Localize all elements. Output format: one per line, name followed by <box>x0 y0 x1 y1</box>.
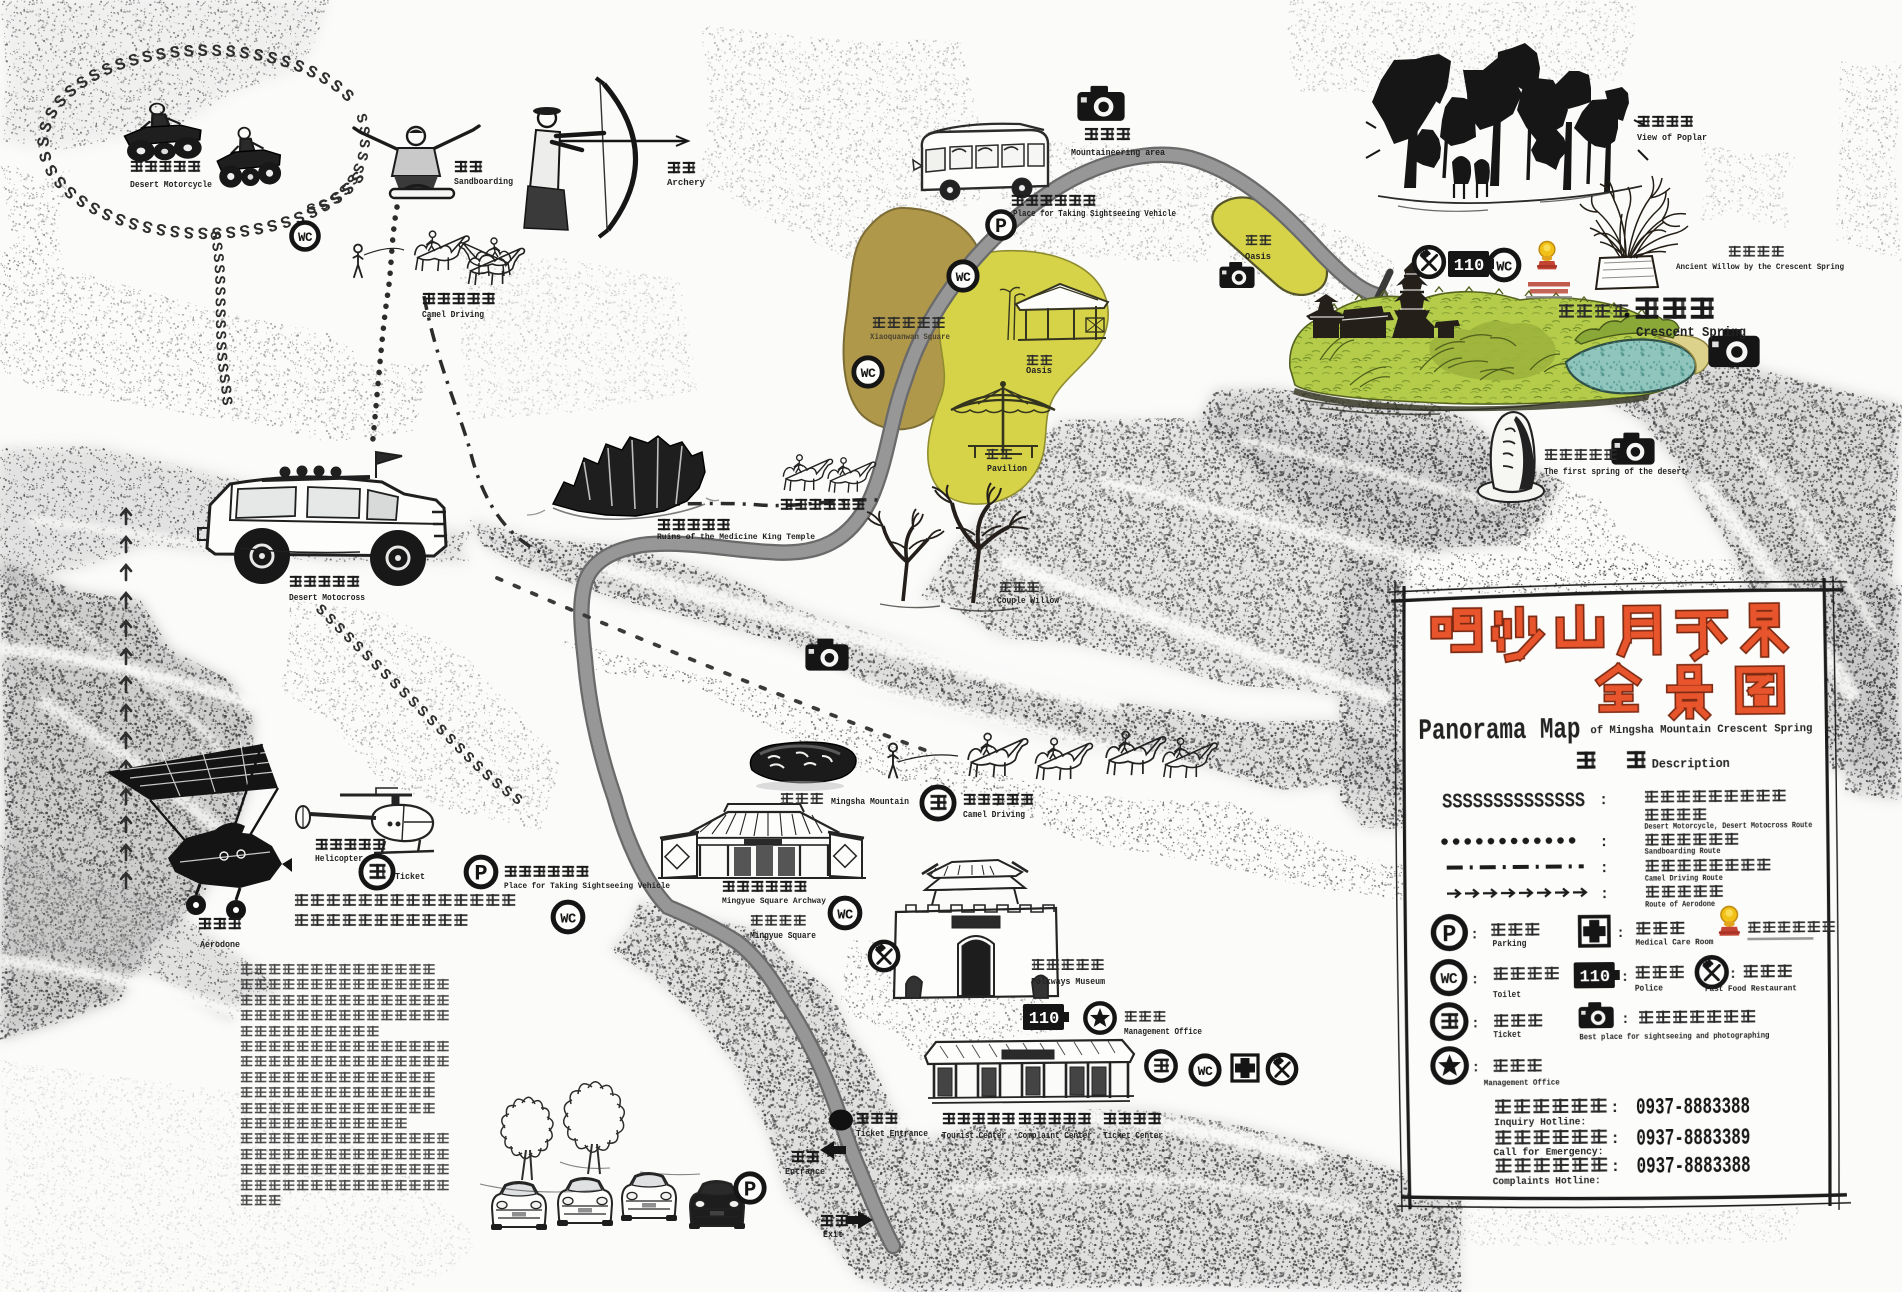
svg-text:Route of Aerodone: Route of Aerodone <box>1645 900 1715 910</box>
svg-text:Ticket Entrance: Ticket Entrance <box>856 1129 928 1139</box>
svg-text::: : <box>1611 1158 1621 1176</box>
svg-text:0937-8883388: 0937-8883388 <box>1636 1094 1750 1121</box>
svg-text:Desert Motocross: Desert Motocross <box>289 592 365 603</box>
svg-text:Description: Description <box>1652 757 1730 772</box>
svg-text:Place for Taking Sightseeing V: Place for Taking Sightseeing Vehicle <box>504 881 670 891</box>
svg-text:0937-8883389: 0937-8883389 <box>1636 1125 1750 1152</box>
svg-text:Archery: Archery <box>667 177 705 188</box>
svg-text:Fast Food Restaurant: Fast Food Restaurant <box>1705 983 1797 994</box>
svg-text::: : <box>1470 927 1479 943</box>
svg-text:Management Office: Management Office <box>1124 1027 1202 1037</box>
svg-text:Camel Driving Route: Camel Driving Route <box>1645 874 1723 884</box>
svg-text:Xiaoquanwan Square: Xiaoquanwan Square <box>870 332 950 342</box>
svg-text:Oasis: Oasis <box>1026 366 1052 376</box>
svg-text:Crescent Spring: Crescent Spring <box>1636 325 1746 341</box>
svg-text:SSSSSSSSSSSSSS: SSSSSSSSSSSSSS <box>1442 790 1585 814</box>
svg-text:Mingsha Mountain: Mingsha Mountain <box>831 796 909 807</box>
svg-text::: : <box>1599 834 1608 851</box>
svg-text:Mingyue Square: Mingyue Square <box>750 931 816 941</box>
svg-text:0937-8883388: 0937-8883388 <box>1636 1153 1750 1180</box>
svg-text:Complaint Center: Complaint Center <box>1018 1131 1092 1141</box>
svg-text:Inquiry Hotline:: Inquiry Hotline: <box>1494 1116 1586 1129</box>
svg-text:Desert Motorcycle, Desert Moto: Desert Motorcycle, Desert Motocross Rout… <box>1644 821 1812 832</box>
svg-text:Place for Taking Sightseeing V: Place for Taking Sightseeing Vehicle <box>1013 209 1176 219</box>
svg-text:Ticket Center: Ticket Center <box>1103 1131 1163 1141</box>
svg-text:Camel Driving: Camel Driving <box>963 809 1025 820</box>
svg-text:Exit: Exit <box>823 1230 843 1240</box>
svg-text::: : <box>1610 1130 1620 1148</box>
svg-text:Medical Care Room: Medical Care Room <box>1635 937 1713 948</box>
svg-text:Ticket: Ticket <box>395 871 425 882</box>
svg-text::: : <box>1621 970 1630 986</box>
svg-text:Ticket: Ticket <box>1493 1030 1521 1040</box>
svg-text:Sandboarding: Sandboarding <box>454 176 513 187</box>
svg-text:Parking: Parking <box>1492 939 1526 949</box>
svg-text:Sandboarding Route: Sandboarding Route <box>1645 847 1721 857</box>
svg-text:Mountaineering area: Mountaineering area <box>1071 147 1165 158</box>
svg-text::: : <box>1600 886 1609 903</box>
svg-text::: : <box>1471 972 1480 988</box>
svg-text:Mingyue Square Archway: Mingyue Square Archway <box>722 896 826 906</box>
svg-text:Best place for sightseeing and: Best place for sightseeing and photograp… <box>1579 1032 1769 1043</box>
svg-text:Police: Police <box>1635 984 1663 994</box>
svg-text:Aerodone: Aerodone <box>200 939 240 950</box>
svg-text:The first spring of the desert: The first spring of the desert <box>1544 467 1686 477</box>
svg-text:View of Poplar: View of Poplar <box>1637 132 1707 143</box>
svg-text:Panorama Map: Panorama Map <box>1418 713 1580 749</box>
svg-text:Folkways Museum: Folkways Museum <box>1031 977 1106 987</box>
svg-text:Management Office: Management Office <box>1484 1078 1560 1089</box>
svg-text:Ancient Willow by the Crescent: Ancient Willow by the Crescent Spring <box>1676 262 1844 272</box>
svg-text::: : <box>1599 792 1608 809</box>
svg-text:Oasis: Oasis <box>1245 252 1271 262</box>
svg-text:Pavilion: Pavilion <box>987 464 1027 474</box>
svg-text:Entrance: Entrance <box>785 1167 825 1177</box>
svg-text::: : <box>1472 1060 1481 1076</box>
svg-text::: : <box>1616 926 1625 942</box>
svg-text:Tourist Center: Tourist Center <box>942 1131 1006 1141</box>
svg-text::: : <box>1471 1016 1480 1032</box>
svg-text::: : <box>1600 860 1609 877</box>
svg-text::: : <box>1621 1012 1630 1028</box>
svg-text:Ruins of the Medicine King Tem: Ruins of the Medicine King Temple <box>657 532 815 542</box>
svg-text:Toilet: Toilet <box>1493 990 1521 1000</box>
svg-text:Helicopter: Helicopter <box>315 853 363 864</box>
svg-text::: : <box>1729 967 1738 983</box>
svg-text:Couple Willow: Couple Willow <box>997 596 1060 606</box>
svg-text:Camel Driving: Camel Driving <box>422 309 484 320</box>
svg-text:of Mingsha Mountain Crescent S: of Mingsha Mountain Crescent Spring <box>1590 723 1812 737</box>
svg-text:Desert Motorcycle: Desert Motorcycle <box>130 179 212 190</box>
svg-text::: : <box>1610 1099 1620 1117</box>
svg-text:Complaints Hotline:: Complaints Hotline: <box>1493 1175 1601 1188</box>
